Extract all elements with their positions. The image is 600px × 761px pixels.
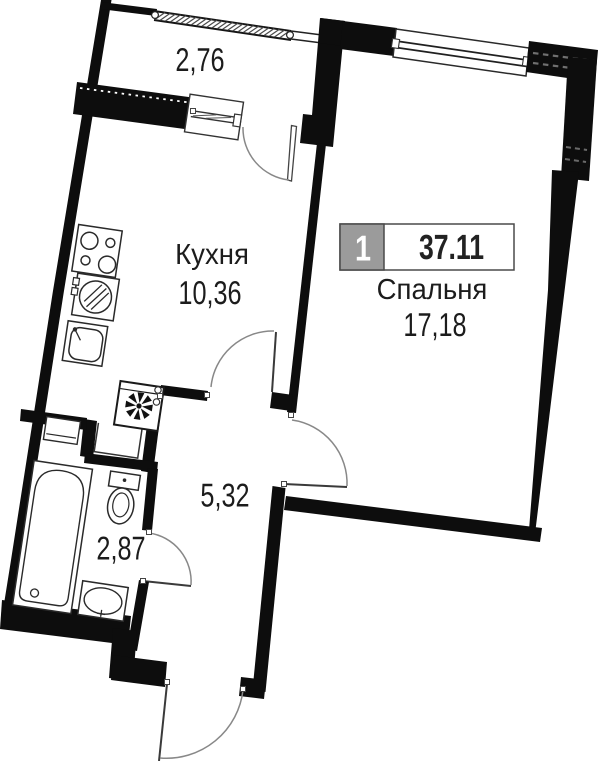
svg-text:10,36: 10,36 [178, 274, 241, 311]
svg-text:2,76: 2,76 [175, 41, 224, 78]
svg-text:5,32: 5,32 [200, 477, 249, 514]
svg-text:Кухня: Кухня [175, 239, 249, 271]
svg-text:1: 1 [355, 228, 371, 269]
svg-text:Спальня: Спальня [377, 274, 488, 306]
svg-text:37.11: 37.11 [419, 228, 484, 267]
svg-text:2,87: 2,87 [96, 530, 145, 567]
svg-text:17,18: 17,18 [403, 306, 466, 343]
